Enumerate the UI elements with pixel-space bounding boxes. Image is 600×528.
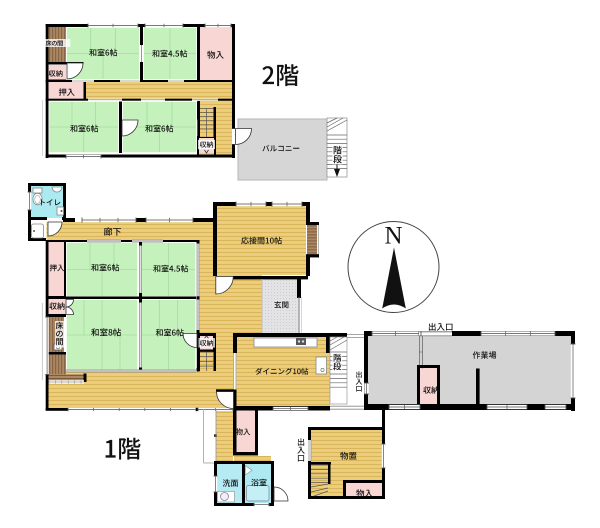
svg-text:N: N [384,223,402,250]
